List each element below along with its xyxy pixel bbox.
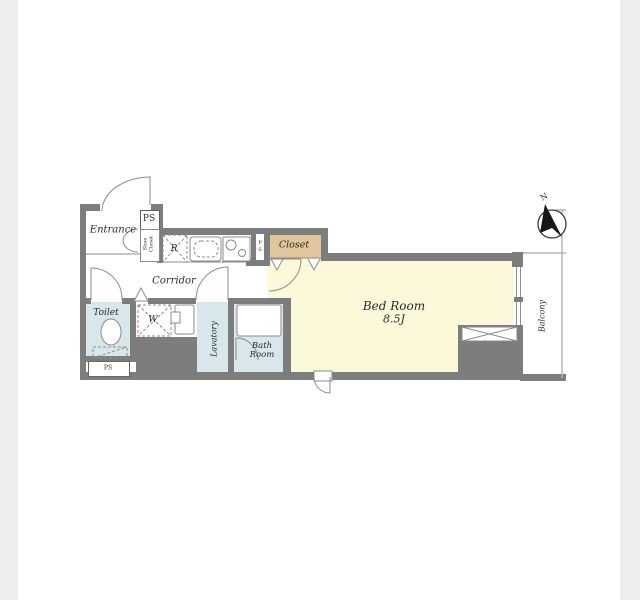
wash-basin bbox=[171, 305, 194, 334]
room-label-bathroom: Bath Room bbox=[244, 342, 280, 360]
shoe-closet-label: Shoe Closet bbox=[144, 231, 155, 257]
room-label-toilet: Toilet bbox=[93, 308, 118, 318]
wall-segment bbox=[246, 259, 270, 266]
washer-label: W bbox=[148, 315, 157, 325]
wall-segment bbox=[228, 302, 234, 372]
wall-segment bbox=[148, 298, 196, 304]
bottom-door-gap bbox=[314, 371, 332, 381]
lavatory-door-swing bbox=[196, 267, 228, 300]
entrance-door-swing bbox=[102, 177, 151, 211]
balcony-boundary-lines bbox=[523, 210, 566, 378]
floorplan-canvas: Entrance PS Shoe Closet R PS Closet Corr… bbox=[0, 0, 640, 600]
right-margin-band bbox=[620, 0, 640, 600]
wall-segment bbox=[520, 374, 566, 381]
wall-segment bbox=[328, 253, 514, 261]
north-label: N bbox=[539, 191, 550, 202]
wall-segment bbox=[80, 204, 86, 380]
wall-fill-utility bbox=[136, 337, 197, 372]
north-compass bbox=[538, 204, 566, 238]
ps-label-entrance: PS bbox=[143, 214, 155, 224]
bathroom-floor bbox=[234, 304, 283, 372]
room-label-corridor: Corridor bbox=[152, 276, 196, 287]
wall-segment bbox=[283, 298, 291, 372]
wall-segment bbox=[86, 298, 91, 304]
room-label-closet: Closet bbox=[279, 240, 309, 251]
wall-segment bbox=[160, 228, 328, 235]
washer-folding-door bbox=[134, 288, 148, 301]
left-margin-band bbox=[0, 0, 18, 600]
compass-needle-icon bbox=[540, 204, 562, 237]
room-label-entrance: Entrance bbox=[90, 225, 136, 236]
bedroom-size-label: 8.5J bbox=[383, 313, 405, 326]
wall-segment bbox=[228, 298, 291, 304]
wall-segment bbox=[321, 228, 328, 261]
toilet-door-swing bbox=[91, 268, 122, 300]
room-label-bedroom: Bed Room bbox=[363, 299, 425, 313]
ps-label-toilet: PS bbox=[104, 365, 112, 372]
bedroom-window-strip bbox=[514, 267, 523, 325]
ps-label-kitchen: PS bbox=[257, 240, 263, 254]
stove bbox=[223, 237, 250, 261]
refrigerator-label: R bbox=[171, 244, 178, 254]
wall-pillar-block bbox=[458, 325, 523, 372]
wall-segment bbox=[512, 252, 523, 267]
wall-segment bbox=[80, 372, 523, 380]
room-label-balcony: Balcony bbox=[538, 300, 547, 332]
room-label-lavatory: Lavatory bbox=[210, 321, 219, 357]
